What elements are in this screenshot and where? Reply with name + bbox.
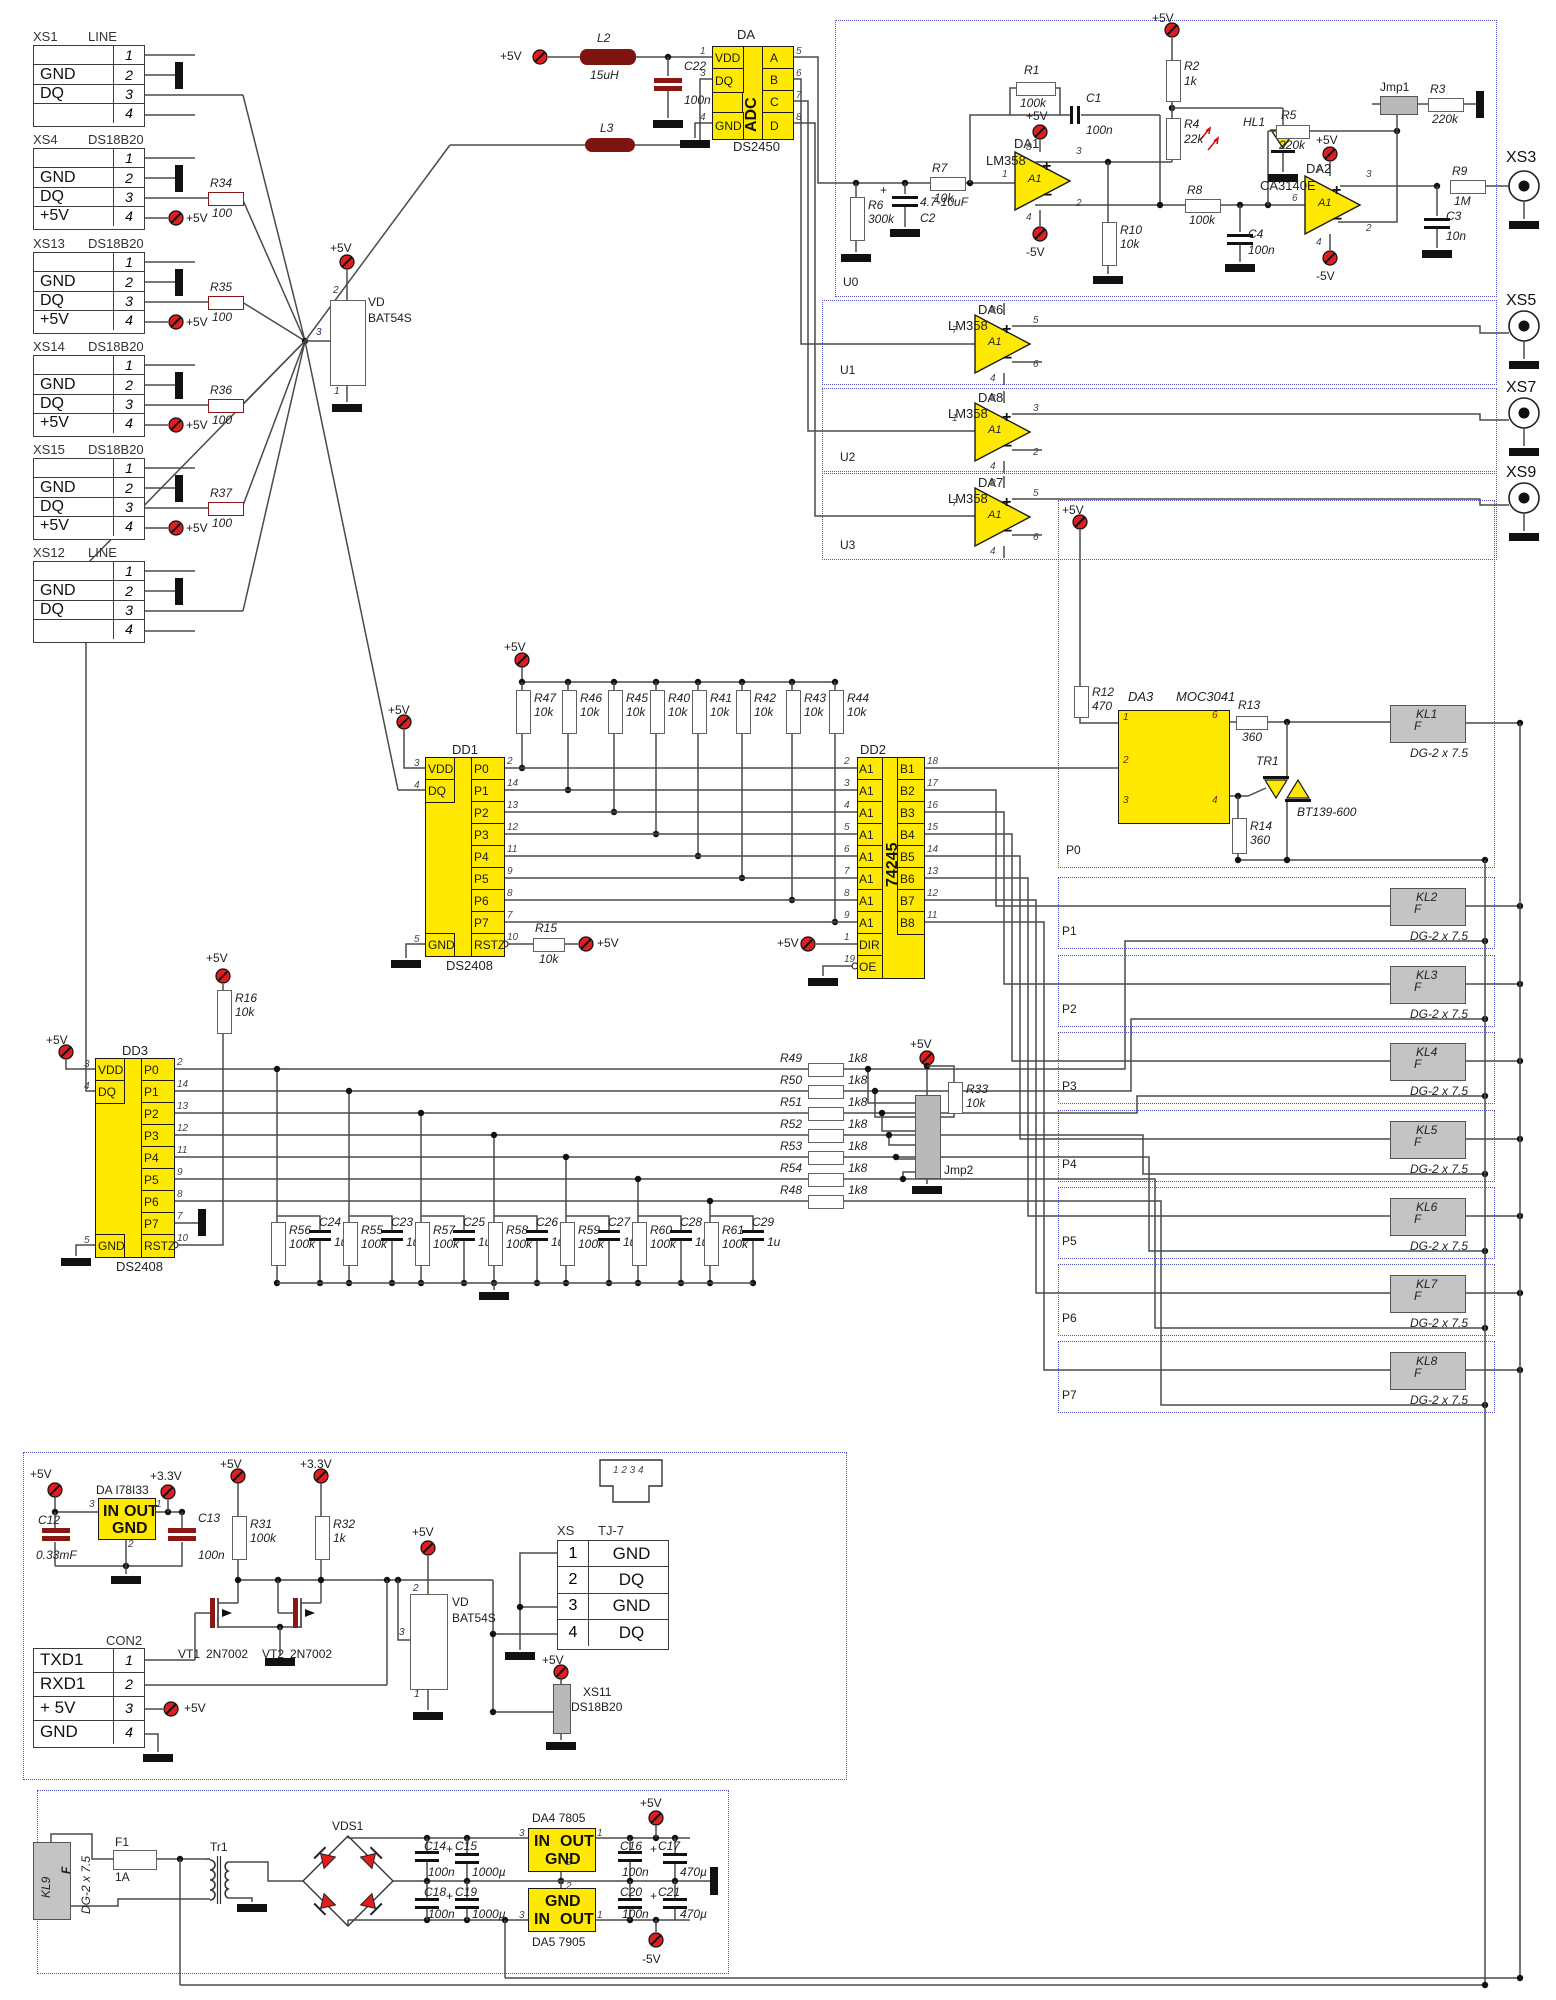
pin-label: DQ [34, 85, 113, 103]
pin-label: DQ [34, 498, 113, 516]
label: R9 [1452, 165, 1467, 177]
label: R37 [210, 487, 232, 499]
label: R1 [1024, 64, 1039, 76]
cap-plate [618, 1851, 642, 1854]
label: R43 [804, 692, 826, 704]
label: 100 [212, 207, 232, 219]
pin-label: +5V [34, 414, 113, 432]
pin-label: DQ [34, 188, 113, 206]
pin-number: 3 [113, 1697, 144, 1720]
label: 360 [1242, 731, 1262, 743]
connector-row: 3GND [558, 1594, 668, 1620]
label: +5V [542, 1654, 564, 1666]
junction-dot [1517, 1975, 1523, 1981]
jack-name: XS3 [1506, 150, 1536, 166]
label: 4 [1212, 796, 1218, 806]
label: 100n [428, 1908, 455, 1920]
section-tag: P6 [1062, 1312, 1077, 1324]
junction-dot [707, 1198, 713, 1204]
vd-des: VD [368, 296, 385, 308]
label: +5V [597, 937, 619, 949]
pin-number: 1 [113, 1649, 144, 1672]
inductor [580, 49, 636, 65]
label: 7 [507, 911, 513, 921]
connector-row: 1 [34, 562, 144, 581]
u-box [822, 300, 1497, 385]
resistor [829, 690, 844, 734]
label: MOC3041 [1176, 690, 1235, 703]
jack-pin [1519, 181, 1530, 192]
pin-label: DQ [589, 1570, 668, 1590]
diode-pack [330, 300, 366, 386]
label: R13 [1238, 699, 1260, 711]
label: 1 [334, 387, 340, 397]
label: B6 [900, 873, 915, 885]
label: P4 [144, 1152, 159, 1164]
label: A1 [988, 337, 1001, 348]
pin-label: +5V [34, 311, 113, 329]
label: 3 [1123, 796, 1129, 806]
label: 100n [684, 94, 711, 106]
label: 3 [1366, 170, 1372, 180]
gnd-vbar [710, 1867, 718, 1895]
resistor [736, 690, 751, 734]
label: P0 [144, 1064, 159, 1076]
label: R49 [780, 1052, 802, 1064]
label: -5V [642, 1953, 661, 1965]
gnd-bar [111, 1576, 141, 1584]
cap-plate [1070, 106, 1073, 124]
label: A1 [859, 873, 874, 885]
label: 13 [177, 1102, 188, 1112]
pin-label: DQ [589, 1623, 668, 1643]
pin-number: 2 [113, 478, 144, 496]
label: R58 [506, 1224, 528, 1236]
minus-sign: − [1003, 351, 1012, 367]
label: R52 [780, 1118, 802, 1130]
label: 2 [1366, 224, 1372, 234]
label: C21 [658, 1886, 680, 1898]
label: R2 [1184, 60, 1199, 72]
label: 10k [934, 192, 953, 204]
resistor [1232, 818, 1247, 854]
wire [406, 944, 425, 958]
label: 8 [844, 889, 850, 899]
label: 1 [700, 47, 706, 57]
label: XS [557, 1524, 574, 1537]
label: +5V [777, 937, 799, 949]
gnd-vbar [175, 165, 183, 192]
label: 9 [844, 911, 850, 921]
label: 1k8 [848, 1096, 867, 1108]
pin-number: 3 [113, 85, 144, 103]
label: GND [98, 1240, 125, 1252]
cap-plate [381, 1230, 403, 1233]
label: R14 [1250, 820, 1272, 832]
label: 1 [414, 1690, 420, 1700]
transformer-name: Tr1 [210, 1841, 228, 1853]
inductor [585, 138, 635, 152]
label: A1 [859, 807, 874, 819]
label: R10 [1120, 224, 1142, 236]
connector-table: 1GND2DQ34 [33, 45, 145, 127]
label: 2 [333, 286, 339, 296]
resistor [1185, 199, 1221, 213]
rail-label: +5V [186, 419, 208, 431]
label: 6 [1212, 711, 1218, 721]
resistor [488, 1222, 503, 1266]
kl-f: F [1414, 1136, 1421, 1148]
kl-f: F [1414, 720, 1421, 732]
label: 1 [156, 1500, 162, 1510]
label: 4 [844, 801, 850, 811]
resistor [808, 1151, 844, 1165]
kl-type: DG-2 x 7.5 [1410, 1008, 1468, 1020]
pin-label: GND [34, 479, 113, 497]
label: 4 [84, 1082, 90, 1092]
label: R5 [1281, 109, 1296, 121]
led-name: HL1 [1243, 116, 1265, 128]
label: 8 [177, 1190, 183, 1200]
label: 1k8 [848, 1162, 867, 1174]
connector-row: DQ3 [34, 395, 144, 414]
gnd-bar [841, 254, 871, 262]
label: 1 [952, 414, 958, 424]
pin-number: 2 [113, 1673, 144, 1696]
gnd-bar [505, 1652, 535, 1660]
label: 15uH [590, 69, 619, 81]
resistor [560, 1222, 575, 1266]
jumper-name: Jmp1 [1380, 81, 1409, 93]
connector-row: 1 [34, 459, 144, 478]
label: +5V [1316, 134, 1338, 146]
label: 1M [1454, 195, 1471, 207]
label: 100 [212, 517, 232, 529]
label: 2 [566, 1858, 572, 1868]
label: D [770, 120, 779, 132]
label: R16 [235, 992, 257, 1004]
junction-dot [1482, 1982, 1488, 1988]
label: 4 [414, 781, 420, 791]
connector-table: 1GND2DQ3+5V4 [33, 458, 145, 540]
kl-type: DG-2 x 7.5 [1410, 930, 1468, 942]
section-tag: P1 [1062, 925, 1077, 937]
label: +5V [206, 952, 228, 964]
pin-number: 4 [113, 1721, 144, 1744]
label: 6 [1033, 360, 1039, 370]
cap-plate [663, 1853, 687, 1856]
label: -5V [1316, 270, 1335, 282]
label: 10 [177, 1234, 188, 1244]
resistor [217, 990, 232, 1034]
gnd-bar [912, 1186, 942, 1194]
label: C24 [319, 1216, 341, 1228]
label: A1 [859, 829, 874, 841]
minus-sign: − [1043, 188, 1052, 204]
label: GND [112, 1521, 148, 1537]
label: DQ [98, 1086, 116, 1098]
label: VDD [98, 1064, 123, 1076]
label: 8 [507, 889, 513, 899]
label: 6 [844, 845, 850, 855]
cap-plate [455, 1861, 479, 1864]
label: IN [103, 1504, 119, 1520]
schematic-canvas: XS1LINE1GND2DQ34XS4DS18B201GND2DQ3+5V4R3… [0, 0, 1556, 2000]
label: 5 [1033, 489, 1039, 499]
wire [695, 123, 712, 138]
label: 100 [212, 311, 232, 323]
label: 7 [177, 1212, 183, 1222]
label: A1 [988, 510, 1001, 521]
label: P4 [474, 851, 489, 863]
kl-type: DG-2 x 7.5 [80, 1856, 92, 1914]
gnd-bar [680, 140, 710, 148]
label: 4 [1316, 238, 1322, 248]
resistor [850, 197, 865, 241]
kl-f: F [1414, 903, 1421, 915]
resistor [232, 1516, 247, 1560]
psu-box [37, 1790, 729, 1974]
chip-des: DD2 [860, 743, 886, 756]
gnd-bar [143, 1754, 173, 1762]
label: 5 [844, 823, 850, 833]
label: 3 [700, 69, 706, 79]
label: 12 [507, 823, 518, 833]
connector-row: GND2 [34, 375, 144, 394]
connector-title: XS15 [33, 443, 65, 456]
connector-title: XS1 [33, 30, 58, 43]
pin-number: 3 [558, 1594, 589, 1619]
pin-label: TXD1 [34, 1650, 113, 1670]
label: 6 [1292, 194, 1298, 204]
pin-label: +5V [34, 207, 113, 225]
label: R31 [250, 1518, 272, 1530]
label: C13 [198, 1512, 220, 1524]
chip-core: 74245 [885, 843, 901, 888]
pin-number: 4 [113, 620, 144, 638]
pin-label: +5V [34, 517, 113, 535]
gnd-bar [546, 1742, 576, 1750]
label: R51 [780, 1096, 802, 1108]
vd-part: BAT54S [368, 312, 412, 324]
cap-plate [742, 1230, 764, 1233]
label: 5 [84, 1236, 90, 1246]
wire [823, 966, 853, 976]
label: + [446, 1843, 453, 1855]
gnd-bar [1509, 533, 1539, 541]
label: +5V [388, 704, 410, 716]
connector-type: DS18B20 [571, 1701, 622, 1713]
label: VD [452, 1596, 469, 1608]
junction-dot [886, 1132, 892, 1138]
connector-row: 1 [34, 356, 144, 375]
label: 10k [626, 706, 645, 718]
cap-plate [415, 1851, 439, 1854]
pin-number: 2 [113, 581, 144, 599]
label: 15 [927, 823, 938, 833]
junction-dot [635, 1176, 641, 1182]
label: 2N7002 [290, 1648, 332, 1660]
connector-title: XS13 [33, 237, 65, 250]
connector-type: DS18B20 [88, 237, 144, 250]
label: GND [715, 120, 742, 132]
label: C29 [752, 1216, 774, 1228]
resistor [208, 399, 244, 413]
resistor [808, 1085, 844, 1099]
connector-row: GND2 [34, 168, 144, 187]
section-tag: U2 [840, 451, 855, 463]
label: DA3 [1128, 690, 1153, 703]
label: P6 [144, 1196, 159, 1208]
resistor [650, 690, 665, 734]
junction-dot [879, 1110, 885, 1116]
pin-number: 2 [113, 272, 144, 290]
box [1263, 776, 1289, 779]
label: C27 [608, 1216, 630, 1228]
label: R40 [668, 692, 690, 704]
gnd-vbar [175, 372, 183, 399]
resistor [1074, 686, 1089, 718]
kl-type: DG-2 x 7.5 [1410, 1394, 1468, 1406]
cap-plate [415, 1859, 439, 1862]
connector-row: GND4 [34, 1721, 144, 1744]
junction-dot [563, 1154, 569, 1160]
label: 10n [1446, 230, 1466, 242]
pin-number: 2 [113, 375, 144, 393]
label: 11 [927, 911, 937, 921]
junction-dot [418, 1110, 424, 1116]
junction-dot [893, 1154, 899, 1160]
label: 1 [1123, 713, 1129, 723]
connector-title: XS14 [33, 340, 65, 353]
cap-plate [309, 1238, 331, 1241]
label: IN [534, 1834, 550, 1850]
label: R59 [578, 1224, 600, 1236]
section-tag: P7 [1062, 1389, 1077, 1401]
label: 8 [1026, 143, 1032, 153]
label: 470µ [680, 1866, 707, 1878]
chip-des: DD3 [122, 1044, 148, 1057]
label: 12 [927, 889, 938, 899]
gnd-bar [808, 978, 838, 986]
label: C25 [463, 1216, 485, 1228]
label: 100k [1020, 97, 1046, 109]
label: R56 [289, 1224, 311, 1236]
connector-table: 1GND2DQ3+5V4 [33, 148, 145, 230]
label: GND [545, 1894, 581, 1910]
label: 1k [333, 1532, 346, 1544]
chip-des: DD1 [452, 743, 478, 756]
pin-number: 3 [113, 292, 144, 310]
pin-number: 2 [113, 65, 144, 83]
label: C23 [391, 1216, 413, 1228]
connector-title: XS11 [583, 1686, 611, 1698]
resistor [562, 690, 577, 734]
label: GND [545, 1852, 581, 1868]
con2-table: TXD11RXD12+ 5V3GND4 [33, 1648, 145, 1748]
label: 4 [1026, 213, 1032, 223]
label: 470µ [680, 1908, 707, 1920]
label: 1A [115, 1871, 130, 1883]
jack-name: XS5 [1506, 293, 1536, 309]
label: OUT [124, 1504, 158, 1520]
pin-label: DQ [34, 292, 113, 310]
gnd-vbar [175, 269, 183, 296]
gnd-bar [237, 1904, 267, 1912]
label: B3 [900, 807, 915, 819]
label: DIR [859, 939, 880, 951]
label: DQ [428, 785, 446, 797]
connector-row: 2DQ [558, 1567, 668, 1593]
label: 3 [844, 779, 850, 789]
resistor [343, 1222, 358, 1266]
rail-label: +5V [186, 212, 208, 224]
resistor [1276, 125, 1310, 139]
label: 1 [844, 933, 850, 943]
resistor [808, 1129, 844, 1143]
label: P2 [474, 807, 489, 819]
fuse [113, 1850, 157, 1870]
mosfet-gate [210, 1598, 215, 1628]
gnd-bar [1225, 264, 1255, 272]
label: 7 [952, 326, 958, 336]
kl-type: DG-2 x 7.5 [1410, 1163, 1468, 1175]
label: P3 [144, 1130, 159, 1142]
label: C18 [424, 1886, 446, 1898]
label: R55 [361, 1224, 383, 1236]
label: 2 [844, 757, 850, 767]
junction-dot [491, 1132, 497, 1138]
gnd-bar [61, 1258, 91, 1266]
kl-f: F [1414, 1058, 1421, 1070]
connector-row: +5V4 [34, 414, 144, 432]
label: C15 [455, 1840, 477, 1852]
label: P2 [144, 1108, 159, 1120]
label: 3 [519, 1829, 525, 1839]
wire [76, 1245, 95, 1256]
pin-label: GND [34, 66, 113, 84]
connector-type: DS18B20 [88, 443, 144, 456]
cap-plate [381, 1238, 403, 1241]
jack-name: XS7 [1506, 380, 1536, 396]
u-box [822, 388, 1497, 472]
kl-type: DG-2 x 7.5 [1410, 1240, 1468, 1252]
label: 220k [1432, 113, 1458, 125]
section-tag: P2 [1062, 1003, 1077, 1015]
label: A1 [859, 895, 874, 907]
label: 17 [927, 779, 938, 789]
connector-row: TXD11 [34, 1649, 144, 1673]
label: 6 [796, 69, 802, 79]
label: 3 [1033, 404, 1039, 414]
pin-label: GND [34, 376, 113, 394]
gnd-vbar [198, 1209, 206, 1236]
resistor [1428, 98, 1464, 112]
resistor [516, 690, 531, 734]
label: R50 [780, 1074, 802, 1086]
minus-sign: − [1003, 439, 1012, 455]
label: A1 [859, 785, 874, 797]
kl-type: DG-2 x 7.5 [1410, 1317, 1468, 1329]
label: 1000µ [472, 1908, 506, 1920]
pin-number: 3 [113, 395, 144, 413]
label: R44 [847, 692, 869, 704]
label: +3.3V [300, 1458, 332, 1470]
label: L3 [600, 122, 613, 134]
connector-row: 4 [34, 620, 144, 638]
label: P0 [474, 763, 489, 775]
label: P7 [144, 1218, 159, 1230]
